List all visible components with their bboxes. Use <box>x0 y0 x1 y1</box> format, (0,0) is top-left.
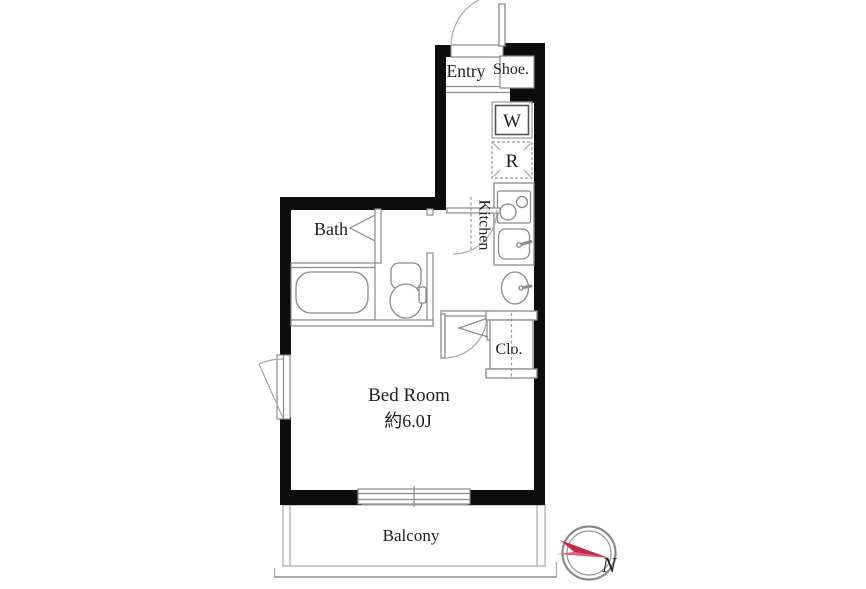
bedroom-label: Bed Room <box>368 385 450 406</box>
entry-door-leaf <box>499 4 505 46</box>
wall-bottom-right <box>468 490 545 505</box>
floor-plan: N Entry Shoe. W R Kitchen Bath Clo. Bed … <box>0 0 866 589</box>
kitchen-label: Kitchen <box>476 200 493 251</box>
bedroom-door-leaf <box>441 314 445 358</box>
entry-door-threshold <box>451 45 503 57</box>
compass: N <box>557 527 617 580</box>
washbasin <box>502 272 532 304</box>
balcony-window <box>358 486 470 507</box>
wall-main-top <box>280 197 446 210</box>
bedroom-west-window <box>259 355 290 419</box>
wall-right <box>534 43 545 505</box>
stove-burner-small <box>517 197 528 208</box>
bedroom-door-threshold <box>441 311 489 316</box>
floor-plan-svg: N Entry Shoe. W R Kitchen Bath Clo. Bed … <box>0 0 866 589</box>
bath-folding-door <box>350 215 375 241</box>
bedroom-door-swing-arc <box>445 315 487 358</box>
shoe-label: Shoe. <box>493 61 529 78</box>
washbasin-faucet-base <box>519 286 523 290</box>
closet-label: Clo. <box>495 341 522 358</box>
bathtub <box>296 272 368 313</box>
kitchen-faucet-base <box>517 243 521 247</box>
toilet-wall-upper-stub <box>427 209 433 215</box>
wall-bottom-left <box>280 490 362 505</box>
washer-label: W <box>503 111 521 132</box>
kitchen-counter <box>494 183 534 265</box>
bath-label: Bath <box>314 219 348 239</box>
toilet-flush-handle <box>419 287 426 303</box>
compass-north-label: N <box>601 553 617 577</box>
entry-door-swing-arc <box>451 0 503 46</box>
toilet-bowl <box>390 284 422 318</box>
bedroom-size-label: 約6.0J <box>384 411 432 431</box>
stove-burner-large <box>500 204 516 220</box>
balcony-label: Balcony <box>383 526 440 545</box>
toilet-wall-lower <box>427 253 433 326</box>
entry-label: Entry <box>447 61 486 81</box>
refrigerator-label: R <box>506 151 519 172</box>
bath-partition-wall <box>375 209 381 263</box>
wall-left-upper <box>280 197 291 355</box>
bath-toilet-bottom-wall <box>291 320 433 326</box>
wall-corridor-left <box>435 45 446 209</box>
closet-folding-door <box>459 318 488 337</box>
